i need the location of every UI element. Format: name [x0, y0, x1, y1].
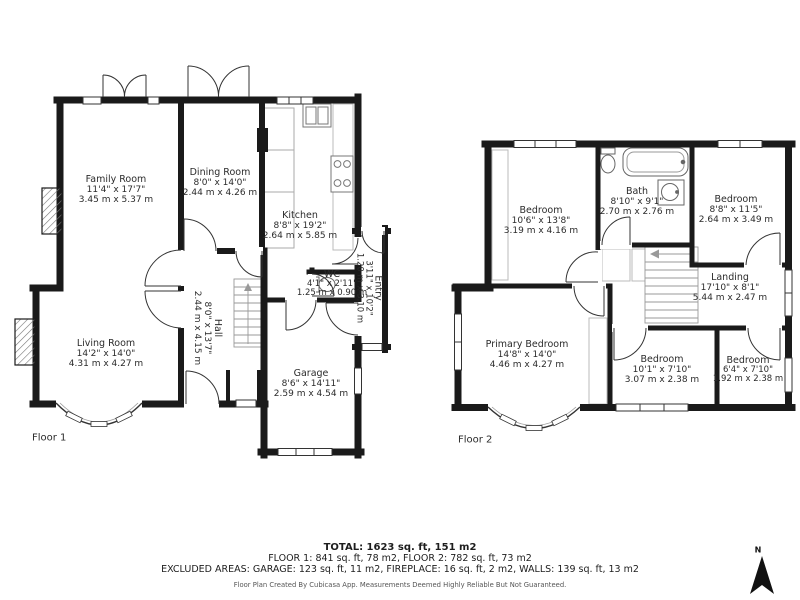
room-name: Kitchen: [263, 211, 337, 221]
room-dim-metric: 2.59 m x 4.54 m: [274, 389, 348, 399]
stairs-floor1: [234, 279, 262, 347]
stove-icon: [331, 156, 353, 192]
living-room-fireplace: [15, 319, 35, 365]
room-dim-metric: 3.07 m x 2.38 m: [625, 375, 699, 385]
floor-plan-page: Family Room 11'4" x 17'7" 3.45 m x 5.37 …: [0, 0, 800, 600]
room-label-dining-room: Dining Room 8'0" x 14'0" 2.44 m x 4.26 m: [183, 168, 257, 198]
disclaimer-line: Floor Plan Created By Cubicasa App. Meas…: [0, 581, 800, 589]
room-name: Bath: [600, 187, 674, 197]
room-label-bedroom-1: Bedroom 10'6" x 13'8" 3.19 m x 4.16 m: [504, 206, 578, 236]
room-dim-metric: 5.44 m x 2.47 m: [693, 293, 767, 303]
room-dim-imperial: 3'11" x 10'2": [363, 253, 373, 323]
chimney-stub: [257, 128, 268, 152]
room-name: Living Room: [69, 339, 143, 349]
room-label-bedroom-3: Bedroom 10'1" x 7'10" 3.07 m x 2.38 m: [625, 355, 699, 385]
room-name: Bedroom: [699, 195, 773, 205]
room-dim-metric: 2.44 m x 4.15 m: [192, 291, 202, 365]
room-name: Family Room: [79, 175, 153, 185]
room-dim-metric: 3.19 m x 4.16 m: [504, 226, 578, 236]
living-room-bay-window: [56, 403, 142, 427]
excluded-areas-line: EXCLUDED AREAS: GARAGE: 123 sq. ft, 11 m…: [0, 564, 800, 575]
room-name: Bedroom: [625, 355, 699, 365]
room-dim-imperial: 8'10" x 9'1": [600, 197, 674, 207]
room-dim-metric: 4.46 m x 4.27 m: [486, 360, 569, 370]
family-room-fireplace: [42, 188, 62, 234]
total-area-line: TOTAL: 1623 sq. ft, 151 m2: [0, 542, 800, 553]
room-dim-imperial: 10'1" x 7'10": [625, 365, 699, 375]
floor-areas-line: FLOOR 1: 841 sq. ft, 78 m2, FLOOR 2: 782…: [0, 553, 800, 564]
room-dim-imperial: 17'10" x 8'1": [693, 283, 767, 293]
room-label-primary-bedroom: Primary Bedroom 14'8" x 14'0" 4.46 m x 4…: [486, 340, 569, 370]
room-label-kitchen: Kitchen 8'8" x 19'2" 2.64 m x 5.85 m: [263, 211, 337, 241]
room-dim-imperial: 11'4" x 17'7": [79, 185, 153, 195]
room-name: Hall: [212, 291, 222, 365]
room-dim-imperial: 14'8" x 14'0": [486, 350, 569, 360]
area-summary: TOTAL: 1623 sq. ft, 151 m2 FLOOR 1: 841 …: [0, 542, 800, 589]
primary-bedroom-bay-window: [488, 407, 580, 431]
room-dim-metric: 2.44 m x 4.26 m: [183, 188, 257, 198]
room-dim-metric: 4.31 m x 4.27 m: [69, 359, 143, 369]
kitchen-sink: [303, 104, 331, 127]
room-dim-imperial: 8'0" x 13'7": [202, 291, 212, 365]
room-name: Primary Bedroom: [486, 340, 569, 350]
room-label-hall: Hall 8'0" x 13'7" 2.44 m x 4.15 m: [192, 291, 222, 365]
room-dim-imperial: 8'8" x 11'5": [699, 205, 773, 215]
room-dim-metric: 2.64 m x 3.49 m: [699, 215, 773, 225]
room-dim-imperial: 10'6" x 13'8": [504, 216, 578, 226]
room-label-bath: Bath 8'10" x 9'1" 2.70 m x 2.76 m: [600, 187, 674, 217]
room-label-family-room: Family Room 11'4" x 17'7" 3.45 m x 5.37 …: [79, 175, 153, 205]
room-dim-imperial: 8'6" x 14'11": [274, 379, 348, 389]
room-dim-metric: 2.70 m x 2.76 m: [600, 207, 674, 217]
room-dim-imperial: 14'2" x 14'0": [69, 349, 143, 359]
room-dim-imperial: 8'8" x 19'2": [263, 221, 337, 231]
floor-plan-drawing: [0, 0, 800, 600]
room-dim-imperial: 8'0" x 14'0": [183, 178, 257, 188]
room-label-bedroom-4: Bedroom 6'4" x 7'10" 1.92 m x 2.38 m: [713, 356, 783, 385]
room-dim-metric: 1.20 m x 3.10 m: [354, 253, 364, 323]
toilet-icon: [601, 148, 615, 173]
room-label-garage: Garage 8'6" x 14'11" 2.59 m x 4.54 m: [274, 369, 348, 399]
room-name: Entry: [373, 253, 383, 323]
room-label-living-room: Living Room 14'2" x 14'0" 4.31 m x 4.27 …: [69, 339, 143, 369]
room-dim-metric: 2.64 m x 5.85 m: [263, 231, 337, 241]
room-name: Dining Room: [183, 168, 257, 178]
floor1-label: Floor 1: [32, 433, 66, 444]
room-name: Bedroom: [504, 206, 578, 216]
room-label-landing: Landing 17'10" x 8'1" 5.44 m x 2.47 m: [693, 273, 767, 303]
room-name: Landing: [693, 273, 767, 283]
floor2-label: Floor 2: [458, 435, 492, 446]
room-dim-metric: 1.92 m x 2.38 m: [713, 375, 783, 385]
room-label-bedroom-2: Bedroom 8'8" x 11'5" 2.64 m x 3.49 m: [699, 195, 773, 225]
room-label-entry: Entry 3'11" x 10'2" 1.20 m x 3.10 m: [354, 253, 383, 323]
room-dim-metric: 3.45 m x 5.37 m: [79, 195, 153, 205]
bathtub-icon: [623, 148, 688, 176]
room-name: Garage: [274, 369, 348, 379]
